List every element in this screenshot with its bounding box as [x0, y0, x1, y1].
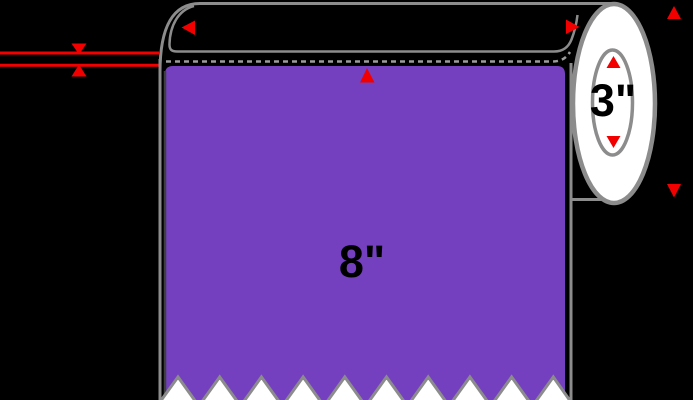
roll-layer-line [169, 6, 577, 52]
roll-edge-arrow-left-icon [182, 21, 196, 36]
od-arrow-up-icon [667, 6, 681, 19]
label-width-label: 8" [339, 236, 385, 287]
core-diameter-label: 3" [590, 75, 636, 126]
liner-dashed-line [166, 52, 570, 62]
od-arrow-down-icon [667, 184, 681, 198]
label-roll-diagram: 8" 3" [0, 0, 693, 400]
label-face [165, 66, 565, 400]
label-roll-drawing: 8" 3" [0, 0, 693, 400]
